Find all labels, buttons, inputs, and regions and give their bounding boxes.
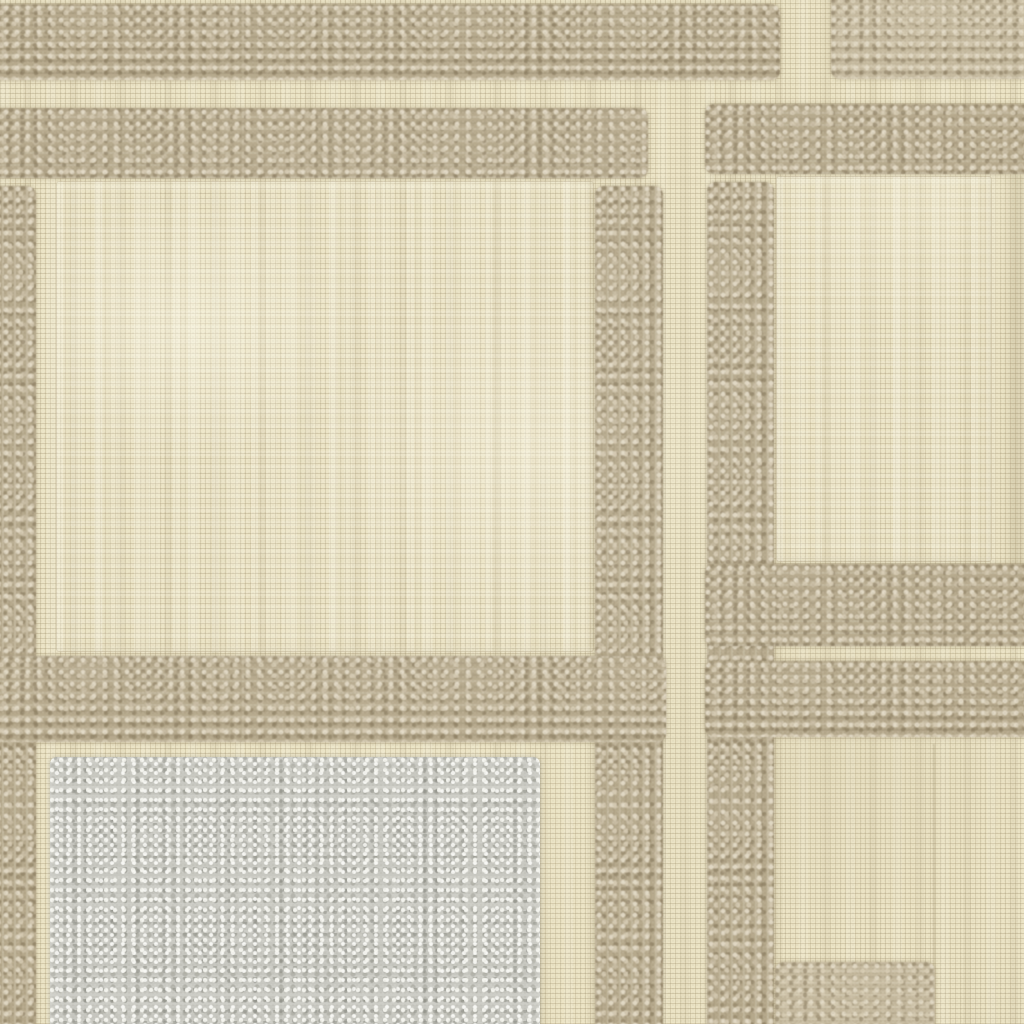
chenille-band-second-left (0, 108, 648, 178)
chenille-band-bottom-right-stub (775, 962, 935, 1024)
chenille-band-right-mid-upper (705, 564, 1024, 646)
plush-square-gray (50, 757, 540, 1024)
chenille-band-left-edge (0, 186, 36, 1024)
chenille-band-right-mid-lower (705, 661, 1024, 737)
chenille-band-top-left (0, 4, 780, 80)
satin-panel-right (776, 176, 992, 562)
chenille-band-second-right (705, 104, 1024, 174)
chenille-band-center-vertical (595, 186, 663, 1024)
fabric-swatch-photo (0, 0, 1024, 1024)
chenille-band-top-right (831, 0, 1024, 79)
satin-panel-center (56, 181, 594, 652)
weave-shade-right-edge (1000, 176, 1024, 566)
chenille-band-bottom-center (0, 656, 666, 742)
